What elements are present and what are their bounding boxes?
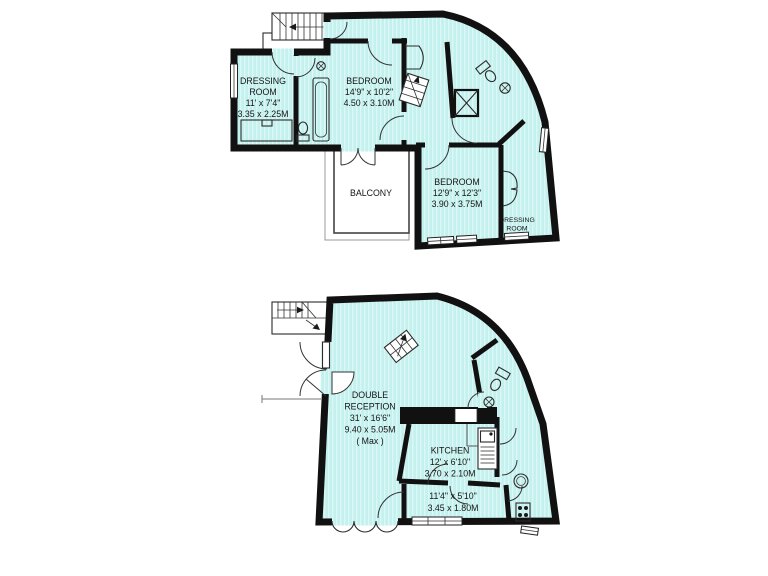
step-ledge bbox=[262, 395, 321, 403]
room-label: BALCONY bbox=[350, 188, 392, 198]
room-dimension: 14'9" x 10'2" bbox=[345, 87, 393, 97]
room-label: BEDROOM bbox=[346, 76, 391, 86]
external-stairs-icon bbox=[272, 302, 330, 334]
room-dimension: 3.90 x 3.75M bbox=[432, 199, 483, 209]
room-dimension: 12' x 6'10" bbox=[430, 457, 470, 467]
room-label: KITCHEN bbox=[431, 446, 470, 456]
room-dimension: 3.45 x 1.80M bbox=[428, 503, 479, 513]
room-dimension: 3.70 x 2.10M bbox=[425, 469, 476, 479]
room-dimension-note: ( Max ) bbox=[356, 436, 383, 446]
room-label: RECEPTION bbox=[344, 402, 395, 412]
window bbox=[231, 64, 238, 98]
room-dimension: 3.35 x 2.25M bbox=[238, 109, 289, 119]
room-label: ROOM bbox=[249, 87, 276, 97]
room-dimension: 11' x 7'4" bbox=[246, 98, 281, 108]
window bbox=[412, 517, 462, 525]
door-leaf bbox=[323, 342, 330, 368]
upper-floor-plan: DRESSING ROOM 11' x 7'4" 3.35 x 2.25M BE… bbox=[231, 13, 557, 246]
room-label: BEDROOM bbox=[434, 177, 479, 187]
room-dimension: 11'4" x 5'10" bbox=[429, 491, 477, 501]
room-label: DOUBLE bbox=[352, 390, 388, 400]
floorplan-drawing: DRESSING ROOM 11' x 7'4" 3.35 x 2.25M BE… bbox=[0, 0, 768, 576]
kitchen-counter bbox=[478, 428, 497, 469]
room-label: DRESSING bbox=[499, 217, 535, 224]
room-label: ROOM bbox=[506, 226, 527, 233]
room-dimension: 9.40 x 5.05M bbox=[345, 425, 396, 435]
room-label: DRESSING bbox=[240, 76, 286, 86]
room-dimension: 4.50 x 3.10M bbox=[344, 98, 395, 108]
floorplan-page: DRESSING ROOM 11' x 7'4" 3.35 x 2.25M BE… bbox=[0, 0, 768, 576]
window bbox=[521, 526, 539, 535]
room-dimension: 12'9" x 12'3" bbox=[433, 188, 481, 198]
lower-floor-plan: DOUBLE RECEPTION 31' x 16'6" 9.40 x 5.05… bbox=[262, 296, 556, 535]
room-dimension: 31' x 16'6" bbox=[350, 413, 390, 423]
